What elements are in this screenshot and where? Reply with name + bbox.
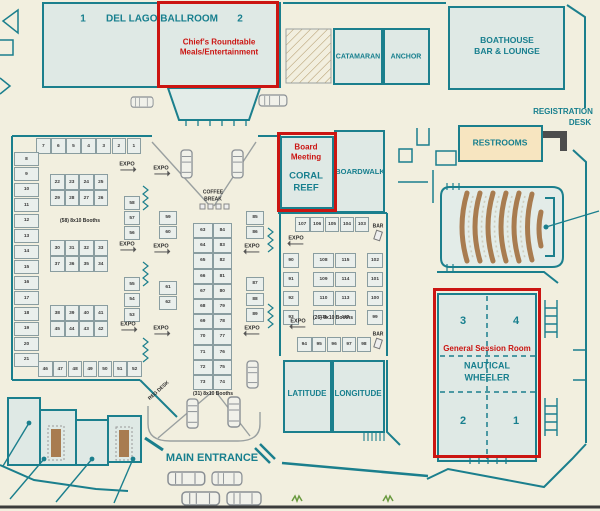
coffee-break-label: COFFEE BREAK [203, 190, 223, 203]
expo-arrow-icon [289, 243, 303, 245]
expo-label: EXPO [244, 325, 259, 331]
catamaran-label: CATAMARAN [336, 52, 380, 61]
bar-label: BAR [373, 224, 384, 230]
highlight-general-session [433, 288, 541, 458]
main-entrance-label: MAIN ENTRANCE [166, 451, 258, 465]
expo-arrow-icon [154, 173, 168, 175]
boathouse-label: BOATHOUSE BAR & LOUNGE [474, 35, 540, 57]
booth-count-left: (58) 8x10 Booths [60, 218, 100, 225]
bar-label: BAR [373, 332, 384, 338]
expo-label: EXPO [290, 318, 305, 324]
expo-arrow-icon [245, 251, 259, 253]
expo-label: EXPO [244, 243, 259, 249]
registration-label-line1: REGISTRATION [533, 107, 593, 117]
expo-marker: EXPO [119, 161, 134, 170]
registration-label-line2: DESK [569, 118, 591, 128]
del-lago-section-1: 1 [80, 13, 86, 26]
expo-marker: EXPO [153, 165, 168, 174]
expo-marker: EXPO [119, 241, 134, 250]
expo-marker: EXPO [153, 325, 168, 334]
restrooms-label: RESTROOMS [473, 137, 528, 148]
bar-icon [373, 230, 383, 242]
expo-arrow-icon [120, 169, 134, 171]
longitude-label: LONGITUDE [334, 389, 381, 399]
expo-marker: EXPO [288, 235, 303, 244]
floor-plan: 7654321891011121314151617181920212223242… [0, 0, 600, 511]
expo-label: EXPO [288, 235, 303, 241]
expo-arrow-icon [154, 251, 168, 253]
expo-marker: EXPO [153, 243, 168, 252]
expo-arrow-icon [121, 329, 135, 331]
highlight-coral-reef [277, 132, 337, 212]
booth-count-center: (31) 8x10 Booths [193, 391, 233, 398]
expo-marker: EXPO [244, 325, 259, 334]
expo-marker: EXPO [120, 321, 135, 330]
latitude-label: LATITUDE [288, 389, 327, 399]
expo-arrow-icon [120, 249, 134, 251]
anchor-label: ANCHOR [391, 52, 422, 61]
expo-arrow-icon [154, 333, 168, 335]
bar-marker: BAR [373, 224, 384, 241]
bar-marker: BAR [373, 332, 384, 349]
expo-marker: EXPO [244, 243, 259, 252]
boardwalk-label: BOARDWALK [335, 167, 385, 177]
bar-icon [373, 338, 383, 350]
booth-count-right: (26) 8x10 Booths [313, 315, 353, 322]
expo-marker: EXPO [290, 318, 305, 327]
highlight-chiefs-roundtable [157, 1, 279, 88]
expo-arrow-icon [245, 333, 259, 335]
expo-arrow-icon [291, 326, 305, 328]
